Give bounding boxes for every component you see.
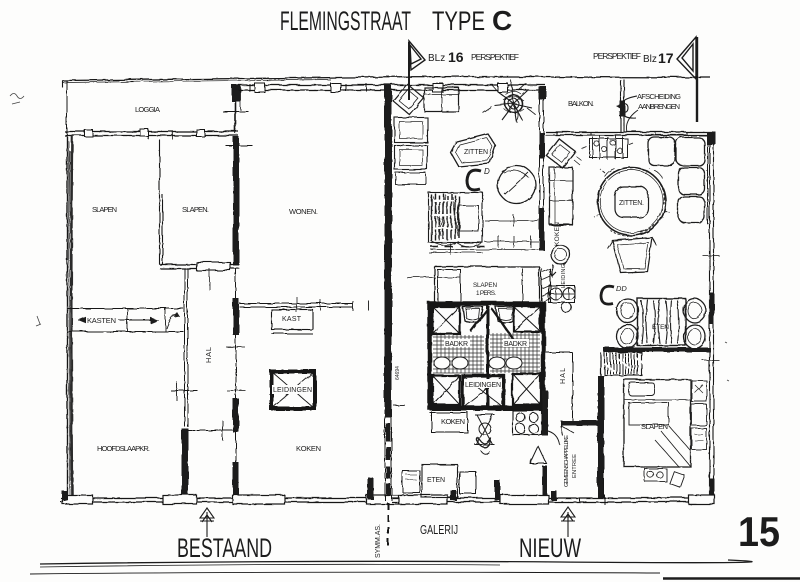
svg-text:1 PERS.: 1 PERS. [476, 290, 496, 297]
svg-text:ENTREE: ENTREE [572, 454, 578, 478]
svg-text:SLAPEN: SLAPEN [641, 422, 668, 431]
svg-text:ETEN: ETEN [427, 477, 445, 484]
svg-text:SLAPEN.: SLAPEN. [182, 205, 209, 214]
svg-text:SLAPEN: SLAPEN [92, 205, 117, 214]
svg-text:AFSCHEIDING: AFSCHEIDING [637, 92, 681, 101]
svg-text:KOKEN: KOKEN [441, 417, 465, 426]
svg-text:NIEUW: NIEUW [519, 533, 581, 563]
svg-text:17: 17 [658, 50, 674, 66]
svg-text:BADKR: BADKR [504, 341, 527, 348]
svg-text:BLz: BLz [428, 53, 445, 64]
svg-text:GALERIJ: GALERIJ [420, 522, 458, 537]
svg-text:LEIDINGEN: LEIDINGEN [465, 382, 501, 389]
svg-text:BESTAAND: BESTAAND [177, 533, 272, 563]
svg-text:ETEN: ETEN [652, 324, 669, 331]
svg-text:Blz: Blz [643, 54, 657, 65]
svg-text:ZITTEN: ZITTEN [464, 149, 488, 156]
svg-text:HAL: HAL [204, 347, 213, 363]
svg-text:GEMEENSCHAPPELIJKE: GEMEENSCHAPPELIJKE [564, 435, 570, 487]
svg-text:BALKON.: BALKON. [568, 99, 594, 108]
svg-text:SLAPEN: SLAPEN [473, 282, 497, 289]
svg-text:16: 16 [448, 49, 464, 65]
svg-text:KOKEN: KOKEN [554, 222, 561, 246]
svg-text:HAL: HAL [560, 368, 567, 384]
svg-text:SYMM.AS.: SYMM.AS. [375, 524, 382, 558]
svg-text:HOOFDSLAAPKR.: HOOFDSLAAPKR. [97, 444, 150, 453]
svg-text:KAST: KAST [282, 316, 302, 323]
svg-text:PERSPEKTIEF: PERSPEKTIEF [593, 51, 641, 61]
svg-text:AANBRENGEN: AANBRENGEN [638, 102, 680, 111]
svg-text:C: C [492, 5, 512, 36]
svg-text:ZITTEN.: ZITTEN. [619, 200, 644, 207]
svg-text:PERSPEKTIEF: PERSPEKTIEF [471, 52, 519, 62]
svg-text:TYPE: TYPE [432, 6, 485, 36]
svg-text:64694: 64694 [395, 366, 401, 380]
svg-text:LEIDING: LEIDING [561, 264, 567, 288]
svg-text:15: 15 [738, 508, 780, 555]
svg-text:DD: DD [616, 284, 627, 293]
svg-text:KASTEN: KASTEN [87, 316, 116, 325]
svg-text:FLEMINGSTRAAT: FLEMINGSTRAAT [280, 6, 411, 36]
svg-text:BADKR: BADKR [445, 341, 468, 348]
svg-text:LOGGIA: LOGGIA [135, 105, 160, 114]
svg-text:D: D [484, 167, 490, 176]
svg-text:LEIDINGEN: LEIDINGEN [273, 387, 312, 394]
svg-text:WONEN.: WONEN. [289, 207, 318, 216]
svg-text:KOKEN: KOKEN [296, 444, 321, 453]
